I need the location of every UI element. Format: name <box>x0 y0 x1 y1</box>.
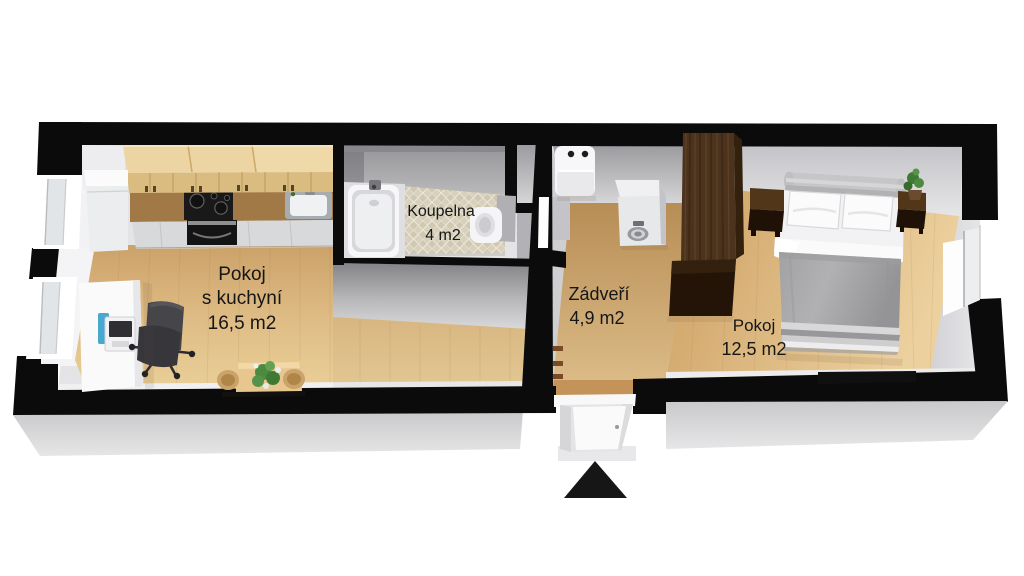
svg-text:16,5 m2: 16,5 m2 <box>208 313 277 334</box>
svg-text:4,9 m2: 4,9 m2 <box>569 308 624 328</box>
svg-text:Pokoj: Pokoj <box>733 316 776 335</box>
svg-text:Pokoj: Pokoj <box>218 264 266 285</box>
svg-text:4 m2: 4 m2 <box>425 227 461 244</box>
svg-text:Zádveří: Zádveří <box>568 284 629 304</box>
svg-text:12,5 m2: 12,5 m2 <box>721 339 786 359</box>
svg-text:s kuchyní: s kuchyní <box>202 288 283 309</box>
svg-text:Koupelna: Koupelna <box>407 203 475 220</box>
